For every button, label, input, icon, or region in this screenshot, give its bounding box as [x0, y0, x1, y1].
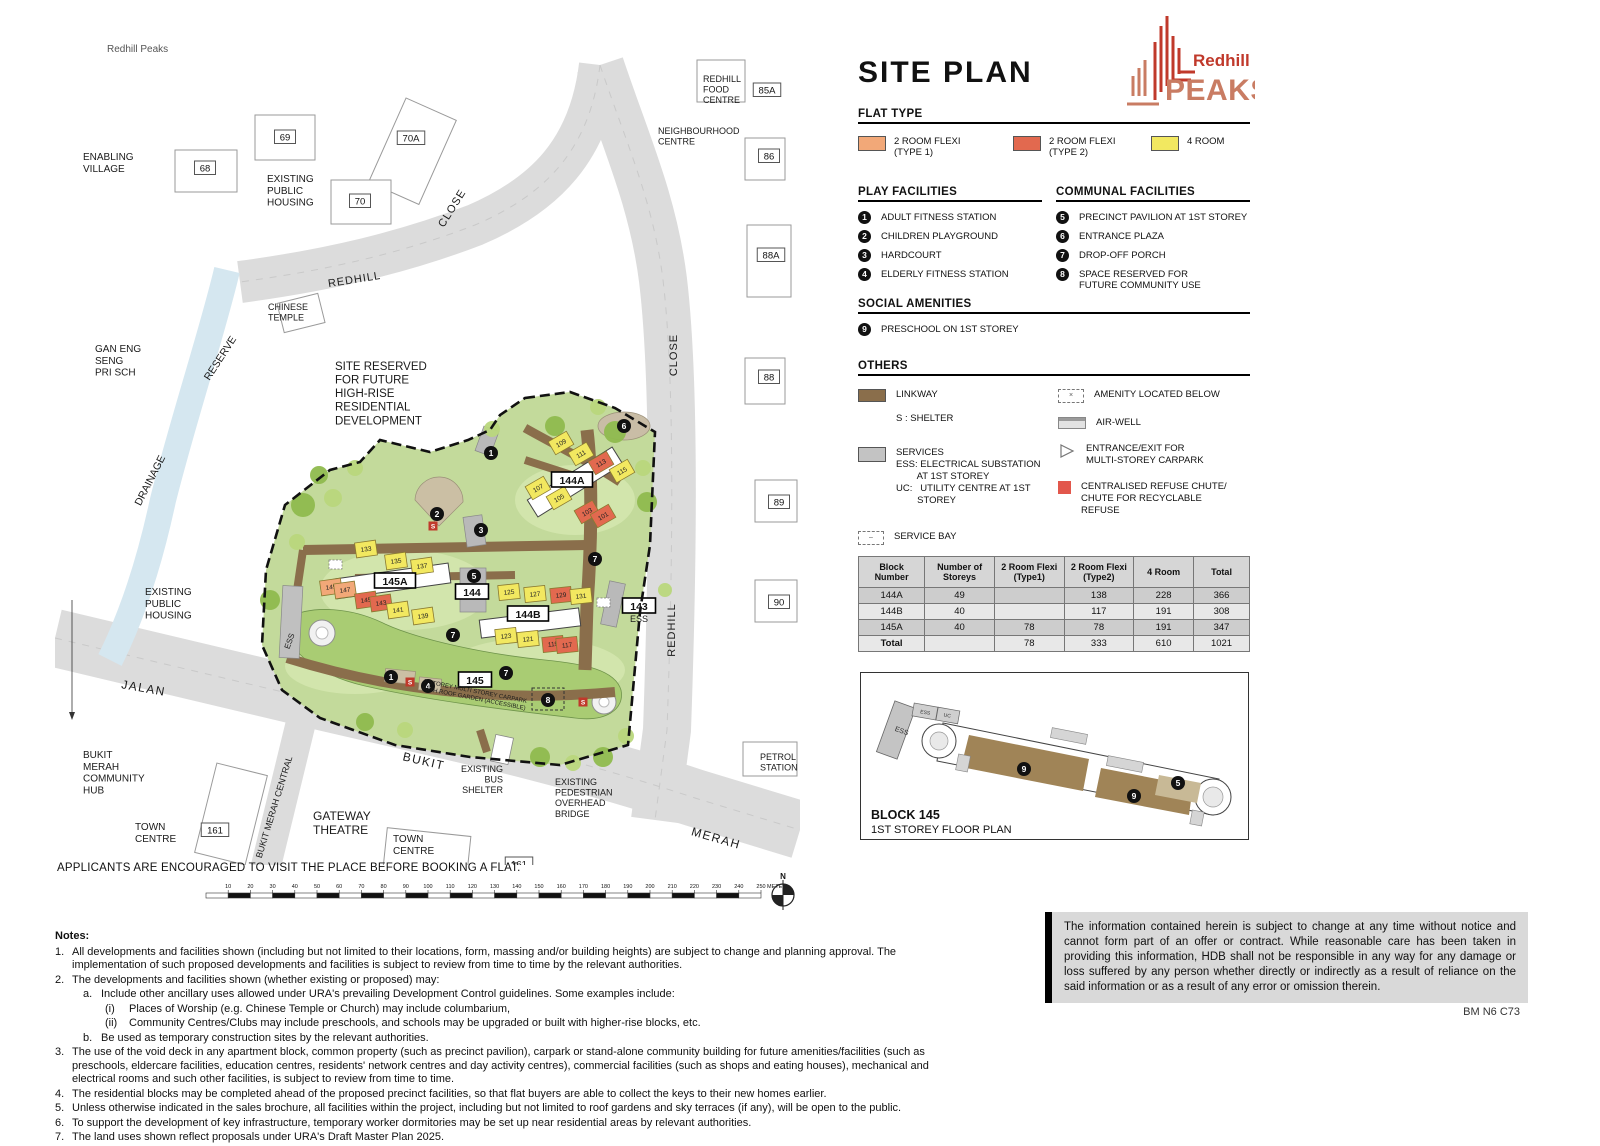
amenity-below-item: × AMENITY LOCATED BELOW [1058, 389, 1250, 403]
table-cell [994, 588, 1064, 604]
facility-item: 7DROP-OFF PORCH [1056, 250, 1250, 262]
numbered-building-label: 86 [764, 152, 775, 163]
numbered-building-label: 89 [774, 498, 785, 509]
unit-tile: 117 [556, 636, 578, 653]
scale-label: 190 [623, 884, 632, 890]
carpark-entrance-label: ENTRANCE/EXIT FOR MULTI-STOREY CARPARK [1086, 443, 1204, 467]
note-line: 6.To support the development of key infr… [55, 1117, 967, 1131]
tree [658, 583, 672, 597]
map-label-line: CENTRE [703, 95, 740, 105]
scale-segment [384, 893, 406, 898]
scale-label: 50 [314, 884, 320, 890]
table-cell: Total [859, 636, 925, 652]
map-label-line: HIGH-RISE [335, 388, 395, 400]
redhill-peaks-logo: Redhill PEAKS [1125, 14, 1255, 118]
scale-segment [339, 893, 361, 898]
others-legend: OTHERS LINKWAY S : SHELTER SERVICES ESS:… [858, 360, 1250, 555]
social-amenities: SOCIAL AMENITIES 9PRESCHOOL ON 1ST STORE… [858, 298, 1250, 343]
map-label-line: HOUSING [145, 611, 192, 622]
block-label: 145 [466, 675, 484, 687]
note-text: To support the development of key infras… [72, 1117, 967, 1131]
unit-number: 127 [529, 591, 541, 599]
numbered-building-label: 70 [355, 197, 366, 208]
map-label-line: RESIDENTIAL [335, 402, 411, 414]
scale-segment [495, 893, 517, 898]
scale-segment [361, 893, 383, 898]
scale-bar: 1020304050607080901001101201301401501601… [198, 880, 782, 906]
facility-item: 3HARDCOURT [858, 250, 1042, 262]
scale-label: 70 [358, 884, 364, 890]
note-line: (ii)Community Centres/Clubs may include … [55, 1017, 967, 1031]
numbered-building-label: 161 [207, 826, 223, 837]
table-cell: 228 [1134, 588, 1194, 604]
facility-number-badge: 9 [858, 323, 871, 336]
map-label-line: SENG [95, 356, 124, 367]
note-line: a.Include other ancillary uses allowed u… [55, 988, 967, 1002]
unit-number: 131 [575, 593, 587, 601]
map-label: CHINESETEMPLE [268, 302, 308, 323]
table-cell: 191 [1134, 620, 1194, 636]
notes-section: Notes: 1.All developments and facilities… [55, 930, 967, 1146]
flat-type-swatch [1151, 136, 1179, 151]
map-label: EXISTINGBUSSHELTER [461, 764, 504, 795]
map-label: PETROLSTATION [760, 752, 798, 773]
unit-tile: 135 [385, 552, 408, 570]
note-marker: 3. [55, 1046, 64, 1060]
social-amenities-title: SOCIAL AMENITIES [858, 298, 1250, 314]
note-line: (i)Places of Worship (e.g. Chinese Templ… [55, 1003, 967, 1017]
unit-number: 125 [503, 589, 515, 597]
note-marker: 5. [55, 1102, 64, 1116]
map-label-line: CHINESE [268, 302, 308, 312]
map-label-line: SHELTER [462, 785, 503, 795]
map-label: GATEWAYTHEATRE [313, 809, 371, 837]
facility-badge-number: 2 [435, 509, 440, 519]
services-note: ESS: ELECTRICAL SUBSTATION AT 1ST STOREY… [896, 459, 1040, 506]
fp-service-bay [1190, 810, 1204, 826]
map-label-line: SITE RESERVED [335, 361, 427, 373]
unit-number: 129 [555, 592, 567, 600]
note-text: Places of Worship (e.g. Chinese Temple o… [129, 1003, 967, 1017]
facility-item: 8SPACE RESERVED FOR FUTURE COMMUNITY USE [1056, 269, 1250, 291]
table-cell: 610 [1134, 636, 1194, 652]
table-cell: 138 [1064, 588, 1134, 604]
facility-label: ADULT FITNESS STATION [881, 212, 996, 223]
tree [618, 728, 634, 744]
map-label: NEIGHBOURHOODCENTRE [658, 126, 740, 147]
facility-item: 5PRECINCT PAVILION AT 1ST STOREY [1056, 212, 1250, 224]
facility-number-badge: 3 [858, 249, 871, 262]
scale-label: 220 [690, 884, 699, 890]
facility-label: DROP-OFF PORCH [1079, 250, 1166, 261]
unit-tile: 131 [570, 587, 592, 604]
flat-type-item: 4 ROOM [1151, 136, 1250, 158]
map-label: SITE RESERVEDFOR FUTUREHIGH-RISERESIDENT… [335, 361, 427, 427]
shelter-s: S [581, 700, 586, 707]
note-marker: 7. [55, 1131, 64, 1145]
numbered-building-label: 88 [764, 373, 775, 384]
services-label: SERVICES [896, 447, 944, 458]
map-label-line: MERAH [83, 762, 119, 773]
note-text: The use of the void deck in any apartmen… [72, 1046, 967, 1087]
scale-segment [295, 893, 317, 898]
applicants-note: APPLICANTS ARE ENCOURAGED TO VISIT THE P… [57, 862, 521, 874]
unit-tile: 147 [334, 581, 357, 599]
facility-label: PRECINCT PAVILION AT 1ST STOREY [1079, 212, 1247, 223]
logo-text-peaks: PEAKS [1165, 74, 1255, 107]
table-cell: 144A [859, 588, 925, 604]
scale-label: 80 [381, 884, 387, 890]
unit-tile: 121 [517, 630, 539, 647]
note-text: Be used as temporary construction sites … [101, 1032, 967, 1046]
scale-label: 60 [336, 884, 342, 890]
numbered-building-label: 68 [200, 164, 211, 175]
scale-segment [739, 893, 761, 898]
others-title: OTHERS [858, 360, 1250, 376]
block-145-floorplan: ESSESSUC 995 BLOCK 145 1ST STOREY FLOOR … [860, 672, 1249, 840]
map-label-line: CENTRE [658, 137, 695, 147]
fp-service-bay [1050, 728, 1087, 745]
scale-label: 20 [247, 884, 253, 890]
facility-item: 2CHILDREN PLAYGROUND [858, 231, 1042, 243]
page-title: SITE PLAN [858, 56, 1033, 90]
table-header-cell: Number of Storeys [925, 557, 995, 588]
note-marker: 4. [55, 1088, 64, 1102]
note-line: 3.The use of the void deck in any apartm… [55, 1046, 967, 1087]
map-label-line: TOWN [393, 834, 423, 845]
scale-segment [472, 893, 494, 898]
table-row: 144B40117191308 [859, 604, 1250, 620]
air-well-icon [1058, 417, 1086, 429]
disclaimer-text: The information contained herein is subj… [1064, 921, 1516, 993]
flat-type-swatch [1013, 136, 1041, 151]
tree [545, 416, 565, 436]
facility-badge-number: 7 [504, 668, 509, 678]
communal-facilities: COMMUNAL FACILITIES 5PRECINCT PAVILION A… [1056, 186, 1250, 298]
scale-segment [650, 893, 672, 898]
table-cell: 1021 [1194, 636, 1250, 652]
scale-segment [250, 893, 272, 898]
services-swatch [858, 447, 886, 462]
linkway-item: LINKWAY S : SHELTER [858, 389, 1058, 425]
tree [397, 722, 413, 738]
facility-label: HARDCOURT [881, 250, 942, 261]
facility-label: ELDERLY FITNESS STATION [881, 269, 1009, 280]
shelter-s: S [408, 680, 413, 687]
fp-badge-number: 9 [1132, 791, 1137, 801]
numbered-building-label: 88A [763, 251, 781, 262]
carpark-feature-circle-inner [316, 627, 328, 639]
scale-label: 120 [468, 884, 477, 890]
map-label-line: CENTRE [393, 846, 434, 857]
table-cell: 78 [994, 620, 1064, 636]
note-text: The developments and facilities shown (w… [72, 974, 967, 988]
note-marker: b. [83, 1032, 92, 1046]
facility-item: 4ELDERLY FITNESS STATION [858, 269, 1042, 281]
map-label-line: PUBLIC [267, 186, 303, 197]
note-text: All developments and facilities shown (i… [72, 946, 967, 973]
shelter-s: S [431, 524, 436, 531]
scale-label: 170 [579, 884, 588, 890]
facilities-columns: PLAY FACILITIES 1ADULT FITNESS STATION2C… [858, 186, 1250, 298]
tree [324, 489, 342, 507]
play-facilities-title: PLAY FACILITIES [858, 186, 1042, 202]
table-cell [994, 604, 1064, 620]
block-label: 144A [559, 475, 585, 487]
tree [310, 466, 328, 484]
scale-label: 210 [668, 884, 677, 890]
scale-segment [672, 893, 694, 898]
service-bay-item: – SERVICE BAY [858, 531, 1058, 545]
note-line: 2.The developments and facilities shown … [55, 974, 967, 988]
refuse-label: CENTRALISED REFUSE CHUTE/ CHUTE FOR RECY… [1081, 481, 1227, 517]
fp-service-bay [956, 754, 971, 772]
scale-segment [428, 893, 450, 898]
services-item: SERVICES ESS: ELECTRICAL SUBSTATION AT 1… [858, 447, 1058, 507]
table-header-cell: 4 Room [1134, 557, 1194, 588]
linkway-swatch [858, 389, 886, 402]
notes-title: Notes: [55, 930, 967, 944]
table-cell: 333 [1064, 636, 1134, 652]
facility-label: SPACE RESERVED FOR FUTURE COMMUNITY USE [1079, 269, 1201, 291]
units-table-wrap: Block NumberNumber of Storeys2 Room Flex… [858, 556, 1250, 652]
map-label-line: EXISTING [145, 587, 192, 598]
map-label-line: REDHILL [666, 603, 678, 656]
amenity-below-icon: × [1058, 389, 1084, 403]
table-cell: 49 [925, 588, 995, 604]
amenity-below-marker [329, 560, 342, 569]
tree [590, 399, 606, 415]
facility-badge-number: 8 [546, 695, 551, 705]
scale-label: 90 [403, 884, 409, 890]
block-label: 144B [515, 609, 541, 621]
facility-label: PRESCHOOL ON 1ST STOREY [881, 324, 1019, 335]
table-cell: 144B [859, 604, 925, 620]
map-label: EXISTINGPUBLICHOUSING [267, 174, 314, 209]
map-label-line: REDHILL [703, 74, 741, 84]
facility-badge-number: 1 [389, 672, 394, 682]
table-header-cell: Block Number [859, 557, 925, 588]
note-marker: 2. [55, 974, 64, 988]
map-label: ENABLINGVILLAGE [83, 152, 134, 175]
map-label-line: HUB [83, 785, 104, 796]
unit-tile: 139 [412, 607, 435, 625]
scale-segment [450, 893, 472, 898]
site-map: 1091111131151071051031011331351371491471… [55, 30, 800, 865]
scale-segment [717, 893, 739, 898]
facility-label: CHILDREN PLAYGROUND [881, 231, 998, 242]
map-label-line: TEMPLE [268, 313, 304, 323]
flat-type-legend: FLAT TYPE 2 ROOM FLEXI (TYPE 1)2 ROOM FL… [858, 108, 1250, 158]
play-facilities: PLAY FACILITIES 1ADULT FITNESS STATION2C… [858, 186, 1042, 298]
tree [356, 713, 374, 731]
map-label-line: OVERHEAD [555, 798, 606, 808]
fp-badge-number: 9 [1022, 764, 1027, 774]
fp-title: BLOCK 145 [871, 808, 940, 822]
facility-badge-number: 1 [489, 448, 494, 458]
unit-number: 121 [522, 636, 534, 644]
service-bay-icon: – [858, 531, 884, 545]
unit-tile: 127 [524, 585, 546, 602]
refuse-icon [1058, 481, 1071, 494]
map-label-line: CENTRE [135, 834, 176, 845]
map-label-line: PRI SCH [95, 368, 136, 379]
flat-type-swatch [858, 136, 886, 151]
note-line: 7.The land uses shown reflect proposals … [55, 1131, 967, 1145]
air-well-item: AIR-WELL [1058, 417, 1250, 429]
map-label-line: STATION [760, 763, 798, 773]
unit-tile: 133 [355, 540, 378, 558]
compass-quadrant [772, 895, 783, 906]
scale-segment [273, 893, 295, 898]
logo-text-redhill: Redhill [1193, 51, 1250, 70]
facility-label: ENTRANCE PLAZA [1079, 231, 1164, 242]
flat-type-items: 2 ROOM FLEXI (TYPE 1)2 ROOM FLEXI (TYPE … [858, 136, 1250, 158]
map-label: Redhill Peaks [107, 44, 168, 55]
tree [637, 492, 657, 512]
north-compass: N [762, 870, 804, 914]
compass-quadrant [783, 884, 794, 895]
numbered-building-label: 90 [774, 598, 785, 609]
note-text: The land uses shown reflect proposals un… [72, 1131, 967, 1145]
map-label-line: BRIDGE [555, 809, 590, 819]
scale-label: 100 [423, 884, 432, 890]
notes-list: 1.All developments and facilities shown … [55, 946, 967, 1145]
facility-number-badge: 6 [1056, 230, 1069, 243]
map-label: BUKITMERAHCOMMUNITYHUB [83, 750, 145, 796]
scale-segment [228, 893, 250, 898]
scale-label: 230 [712, 884, 721, 890]
communal-facilities-title: COMMUNAL FACILITIES [1056, 186, 1250, 202]
map-label-line: BUS [484, 775, 503, 785]
note-text: Include other ancillary uses allowed und… [101, 988, 967, 1002]
table-row: Total783336101021 [859, 636, 1250, 652]
map-label-line: Redhill Peaks [107, 44, 168, 55]
scale-segment [694, 893, 716, 898]
note-text: Unless otherwise indicated in the sales … [72, 1102, 967, 1116]
flat-type-label: 2 ROOM FLEXI (TYPE 2) [1049, 136, 1116, 158]
scale-label: 150 [534, 884, 543, 890]
service-bay-label: SERVICE BAY [894, 531, 956, 545]
note-marker: (ii) [105, 1017, 117, 1031]
amenity-below-label: AMENITY LOCATED BELOW [1094, 389, 1220, 403]
play-facilities-list: 1ADULT FITNESS STATION2CHILDREN PLAYGROU… [858, 212, 1042, 281]
fp-right-core [1203, 787, 1223, 807]
map-label-line: COMMUNITY [83, 774, 145, 785]
table-row: 144A49138228366 [859, 588, 1250, 604]
scale-segment [317, 893, 339, 898]
map-label-line: PUBLIC [145, 599, 181, 610]
facility-badge-number: 6 [622, 421, 627, 431]
scale-label: 40 [292, 884, 298, 890]
map-label-line: EXISTING [461, 764, 503, 774]
map-label-line: DEVELOPMENT [335, 415, 422, 427]
scale-label: 180 [601, 884, 610, 890]
table-row: 145A407878191347 [859, 620, 1250, 636]
map-label-line: TOWN [135, 822, 165, 833]
tree [635, 460, 651, 476]
facility-badge-number: 7 [593, 554, 598, 564]
fp-badge-number: 5 [1176, 778, 1181, 788]
facility-number-badge: 5 [1056, 211, 1069, 224]
unit-number: 123 [500, 633, 512, 641]
table-header-cell: 2 Room Flexi (Type1) [994, 557, 1064, 588]
table-header-cell: Total [1194, 557, 1250, 588]
scale-label: 200 [645, 884, 654, 890]
floorplan-drawing: ESSESSUC 995 BLOCK 145 1ST STOREY FLOOR … [861, 673, 1248, 839]
note-marker: 1. [55, 946, 64, 960]
map-label-line: EXISTING [267, 174, 314, 185]
map-label-line: GATEWAY [313, 809, 371, 823]
table-cell: 117 [1064, 604, 1134, 620]
map-label-line: HOUSING [267, 198, 314, 209]
flat-type-item: 2 ROOM FLEXI (TYPE 2) [1013, 136, 1151, 158]
numbered-building-label: 85A [759, 86, 777, 97]
note-line: 1.All developments and facilities shown … [55, 946, 967, 973]
map-label-line: EXISTING [555, 777, 597, 787]
map-label-line: FOR FUTURE [335, 375, 409, 387]
scale-segment [539, 893, 561, 898]
map-label-line: THEATRE [313, 823, 368, 837]
map-label: EXISTINGPUBLICHOUSING [145, 587, 192, 622]
carpark-entrance-item: ENTRANCE/EXIT FOR MULTI-STOREY CARPARK [1058, 443, 1250, 467]
note-marker: a. [83, 988, 92, 1002]
note-text: Community Centres/Clubs may include pres… [129, 1017, 967, 1031]
table-cell: 366 [1194, 588, 1250, 604]
unit-tile: 141 [387, 601, 410, 619]
linkway-label: LINKWAY [896, 389, 938, 400]
table-cell [925, 636, 995, 652]
table-header-cell: 2 Room Flexi (Type2) [1064, 557, 1134, 588]
carpark-feature-circle-inner [599, 697, 609, 707]
carpark-entrance-icon [1058, 443, 1076, 459]
others-columns: LINKWAY S : SHELTER SERVICES ESS: ELECTR… [858, 389, 1250, 555]
note-line: 5.Unless otherwise indicated in the sale… [55, 1102, 967, 1116]
facility-number-badge: 1 [858, 211, 871, 224]
table-cell: 347 [1194, 620, 1250, 636]
others-left: LINKWAY S : SHELTER SERVICES ESS: ELECTR… [858, 389, 1058, 555]
facility-number-badge: 7 [1056, 249, 1069, 262]
fp-left-core [930, 732, 948, 750]
map-label-line: ESS [630, 614, 648, 624]
tree [289, 534, 305, 550]
facility-badge-number: 7 [451, 630, 456, 640]
scale-label: 140 [512, 884, 521, 890]
disclaimer-box: The information contained herein is subj… [1045, 912, 1528, 1003]
shelter-note: S : SHELTER [896, 413, 953, 424]
scale-label: 10 [225, 884, 231, 890]
scale-segment [561, 893, 583, 898]
note-marker: (i) [105, 1003, 115, 1017]
numbered-building-label: 69 [280, 133, 291, 144]
scale-label: 30 [270, 884, 276, 890]
map-label-line: VILLAGE [83, 164, 125, 175]
facility-number-badge: 2 [858, 230, 871, 243]
table-cell: 40 [925, 620, 995, 636]
note-line: 4.The residential blocks may be complete… [55, 1088, 967, 1102]
map-label: REDHILL [666, 603, 678, 656]
map-label-line: BUKIT [83, 750, 112, 761]
map-label-line: CLOSE [668, 334, 680, 376]
table-cell: 145A [859, 620, 925, 636]
table-cell: 78 [994, 636, 1064, 652]
map-label-line: PEDESTRIAN [555, 788, 613, 798]
scale-segment [517, 893, 539, 898]
refuse-item: CENTRALISED REFUSE CHUTE/ CHUTE FOR RECY… [1058, 481, 1250, 517]
scale-label: 110 [446, 884, 455, 890]
numbered-building-label: 70A [403, 134, 421, 145]
map-label: ESS [630, 614, 648, 624]
